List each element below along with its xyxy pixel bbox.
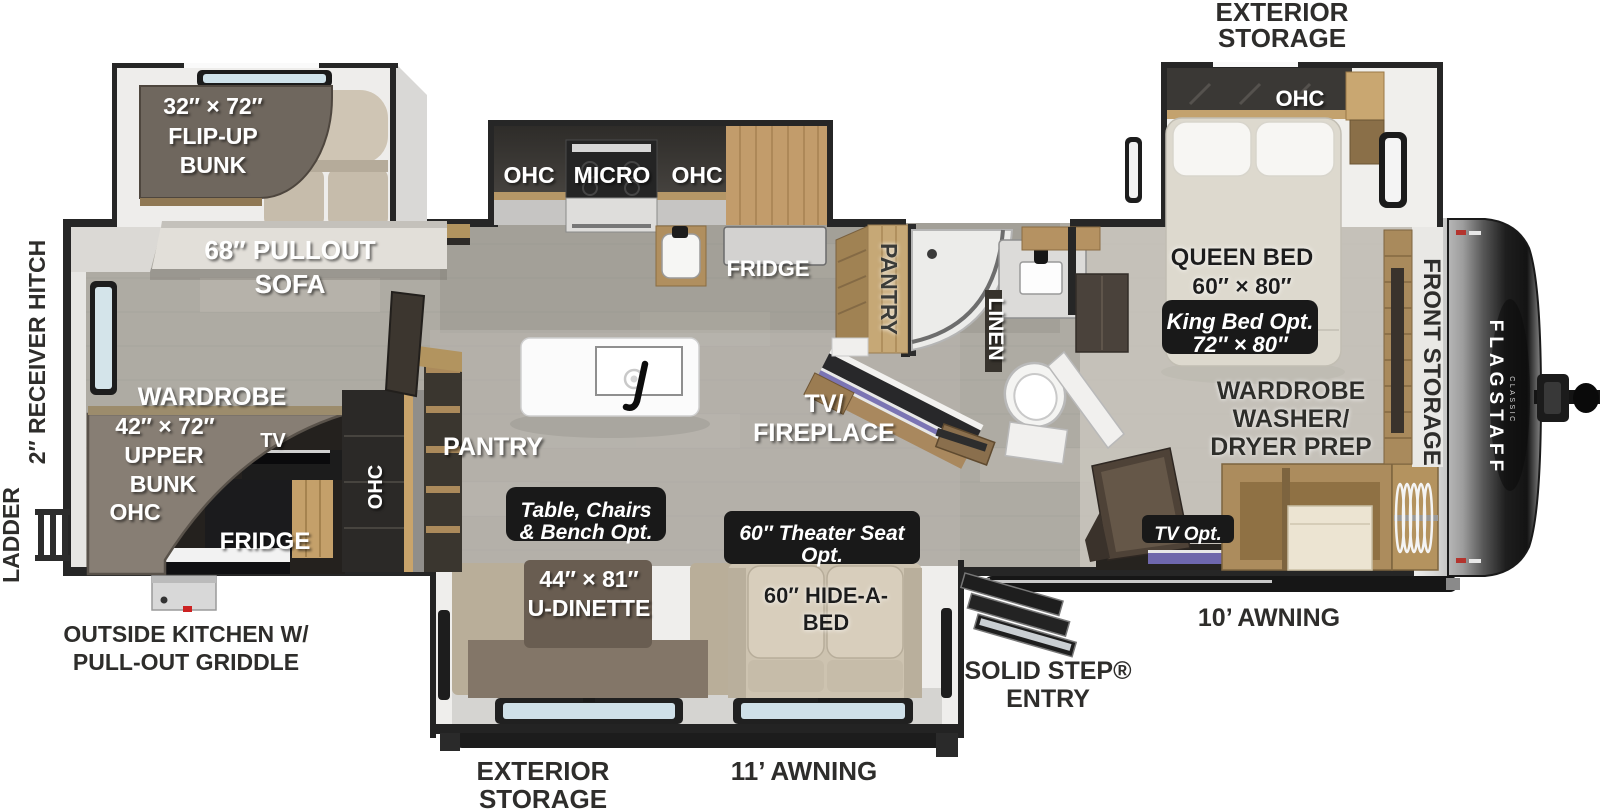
svg-text:TV: TV — [260, 430, 286, 452]
svg-text:OHC: OHC — [365, 465, 387, 509]
svg-text:FIREPLACE: FIREPLACE — [753, 419, 895, 447]
svg-text:60″ Theater Seat: 60″ Theater Seat — [739, 522, 905, 545]
svg-text:60″ HIDE-A-: 60″ HIDE-A- — [764, 583, 888, 608]
svg-text:FLAGSTAFF: FLAGSTAFF — [1485, 320, 1506, 477]
svg-text:SOFA: SOFA — [255, 269, 326, 299]
svg-text:OHC: OHC — [671, 162, 722, 188]
svg-text:CLASSIC: CLASSIC — [1508, 376, 1515, 423]
svg-text:DRYER PREP: DRYER PREP — [1210, 433, 1372, 461]
svg-text:BED: BED — [803, 610, 849, 635]
svg-text:PANTRY: PANTRY — [876, 243, 902, 335]
svg-text:Table, Chairs: Table, Chairs — [520, 499, 651, 522]
svg-text:WARDROBE: WARDROBE — [138, 383, 287, 411]
svg-text:Opt.: Opt. — [801, 544, 843, 567]
svg-text:68″ PULLOUT: 68″ PULLOUT — [204, 235, 375, 265]
svg-text:44″ × 81″: 44″ × 81″ — [539, 566, 638, 592]
svg-text:U-DINETTE: U-DINETTE — [528, 595, 651, 621]
svg-text:32″ × 72″: 32″ × 72″ — [163, 93, 262, 119]
svg-text:42″ × 72″: 42″ × 72″ — [115, 413, 214, 439]
svg-text:SOLID STEP®: SOLID STEP® — [964, 657, 1132, 685]
svg-text:WASHER/: WASHER/ — [1233, 405, 1350, 433]
svg-text:11’ AWNING: 11’ AWNING — [731, 756, 877, 786]
svg-text:60″ × 80″: 60″ × 80″ — [1192, 273, 1291, 299]
svg-text:PANTRY: PANTRY — [443, 433, 543, 461]
svg-text:MICRO: MICRO — [574, 162, 651, 188]
svg-text:EXTERIOR: EXTERIOR — [477, 756, 610, 786]
svg-text:FRONT STORAGE: FRONT STORAGE — [1418, 258, 1445, 466]
svg-text:LADDER: LADDER — [0, 487, 24, 583]
svg-text:TV Opt.: TV Opt. — [1154, 524, 1222, 545]
svg-text:FLIP-UP: FLIP-UP — [168, 123, 257, 149]
svg-text:STORAGE: STORAGE — [1218, 23, 1346, 53]
svg-text:OHC: OHC — [1276, 86, 1325, 111]
svg-text:PULL-OUT GRIDDLE: PULL-OUT GRIDDLE — [73, 649, 299, 675]
svg-text:& Bench Opt.: & Bench Opt. — [519, 521, 652, 544]
svg-text:LINEN: LINEN — [984, 298, 1007, 361]
svg-text:FRIDGE: FRIDGE — [726, 256, 809, 281]
svg-text:72″ × 80″: 72″ × 80″ — [1192, 332, 1289, 357]
svg-text:STORAGE: STORAGE — [479, 784, 607, 811]
svg-text:OHC: OHC — [503, 162, 554, 188]
svg-text:2″ RECEIVER HITCH: 2″ RECEIVER HITCH — [24, 240, 50, 464]
svg-text:UPPER: UPPER — [124, 442, 204, 468]
svg-text:QUEEN BED: QUEEN BED — [1171, 244, 1314, 271]
svg-text:BUNK: BUNK — [130, 471, 197, 497]
svg-text:WARDROBE: WARDROBE — [1217, 377, 1366, 405]
svg-text:10’ AWNING: 10’ AWNING — [1198, 604, 1340, 632]
svg-text:BUNK: BUNK — [180, 152, 247, 178]
svg-text:OUTSIDE KITCHEN W/: OUTSIDE KITCHEN W/ — [63, 621, 309, 647]
svg-text:FRIDGE: FRIDGE — [220, 528, 311, 555]
svg-text:TV/: TV/ — [805, 390, 844, 418]
svg-text:ENTRY: ENTRY — [1006, 685, 1090, 713]
svg-text:OHC: OHC — [109, 499, 160, 525]
svg-text:King Bed Opt.: King Bed Opt. — [1167, 309, 1314, 334]
